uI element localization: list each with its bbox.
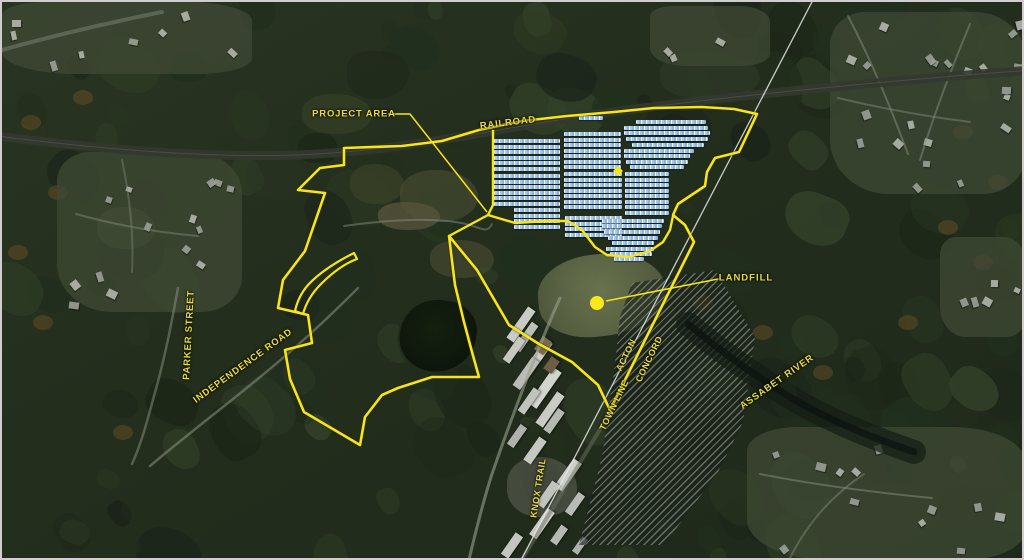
label-project-area: PROJECT AREA	[312, 109, 396, 120]
label-knox-trail: KNOX TRAIL	[528, 458, 547, 519]
label-assabet-river: ASSABET RIVER	[738, 352, 816, 411]
label-independence-road: INDEPENDENCE ROAD	[191, 326, 294, 405]
map-labels-layer: PROJECT AREARAILROADLANDFILLPARKER STREE…	[2, 2, 1024, 560]
label-railroad: RAILROAD	[479, 114, 536, 132]
label-concord: CONCORD	[634, 334, 665, 383]
map-canvas: PROJECT AREARAILROADLANDFILLPARKER STREE…	[2, 2, 1024, 560]
label-parker-street: PARKER STREET	[181, 290, 197, 380]
aerial-site-map: PROJECT AREARAILROADLANDFILLPARKER STREE…	[0, 0, 1024, 560]
label-town-line: TOWN LINE	[597, 378, 630, 432]
label-landfill: LANDFILL	[719, 273, 773, 284]
label-acton: ACTON	[614, 337, 638, 372]
